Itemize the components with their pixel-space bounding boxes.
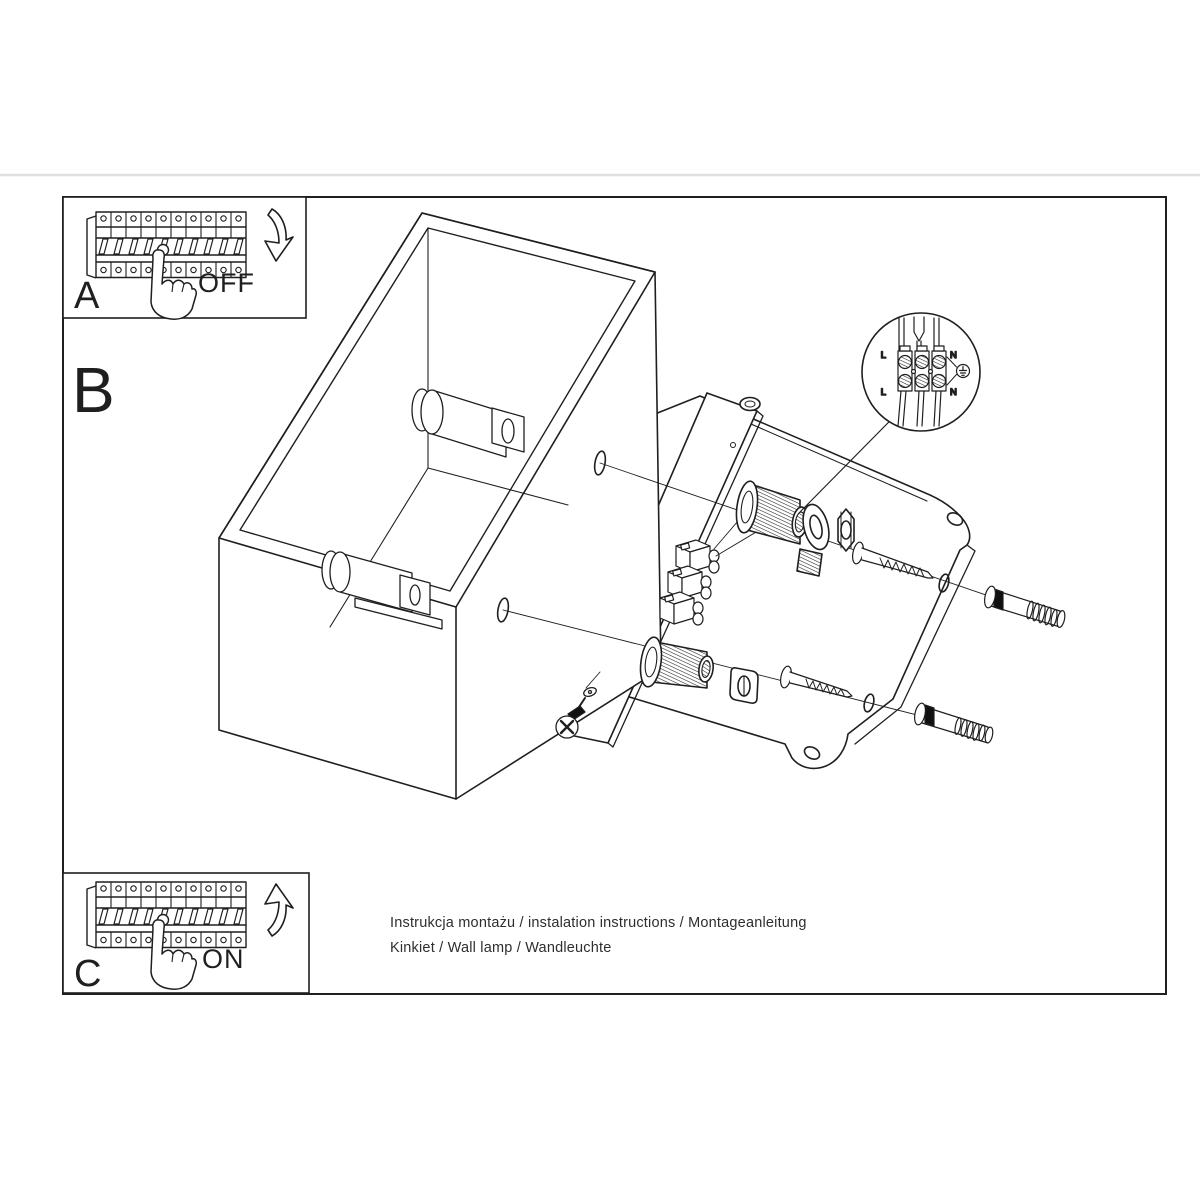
wiring-label-n-bottom: N xyxy=(950,387,957,398)
footer-product-line: Kinkiet / Wall lamp / Wandleuchte xyxy=(390,940,612,956)
step-c-label: C xyxy=(74,953,101,995)
step-a-label: A xyxy=(74,275,100,317)
wiring-label-l-bottom: L xyxy=(881,387,886,398)
plate-top-grommet xyxy=(740,398,760,411)
instruction-sheet: L N L N A OFF B C ON Instrukcja montażu … xyxy=(0,0,1200,1200)
instruction-drawing: L N L N A OFF B C ON Instrukcja montażu … xyxy=(0,0,1200,1200)
wiring-label-l-top: L xyxy=(881,350,886,361)
on-label: ON xyxy=(202,944,245,974)
off-label: OFF xyxy=(198,268,255,298)
square-nut-lower xyxy=(730,668,758,703)
wiring-label-n-top: N xyxy=(950,350,957,361)
step-b-label: B xyxy=(72,354,115,426)
inset-step-c: C ON xyxy=(63,873,309,995)
footer-title-line: Instrukcja montażu / instalation instruc… xyxy=(390,915,807,931)
wiring-detail-circle: L N L N xyxy=(862,313,980,431)
hex-nut-upper xyxy=(838,509,854,551)
inset-step-a: A OFF xyxy=(63,197,306,319)
